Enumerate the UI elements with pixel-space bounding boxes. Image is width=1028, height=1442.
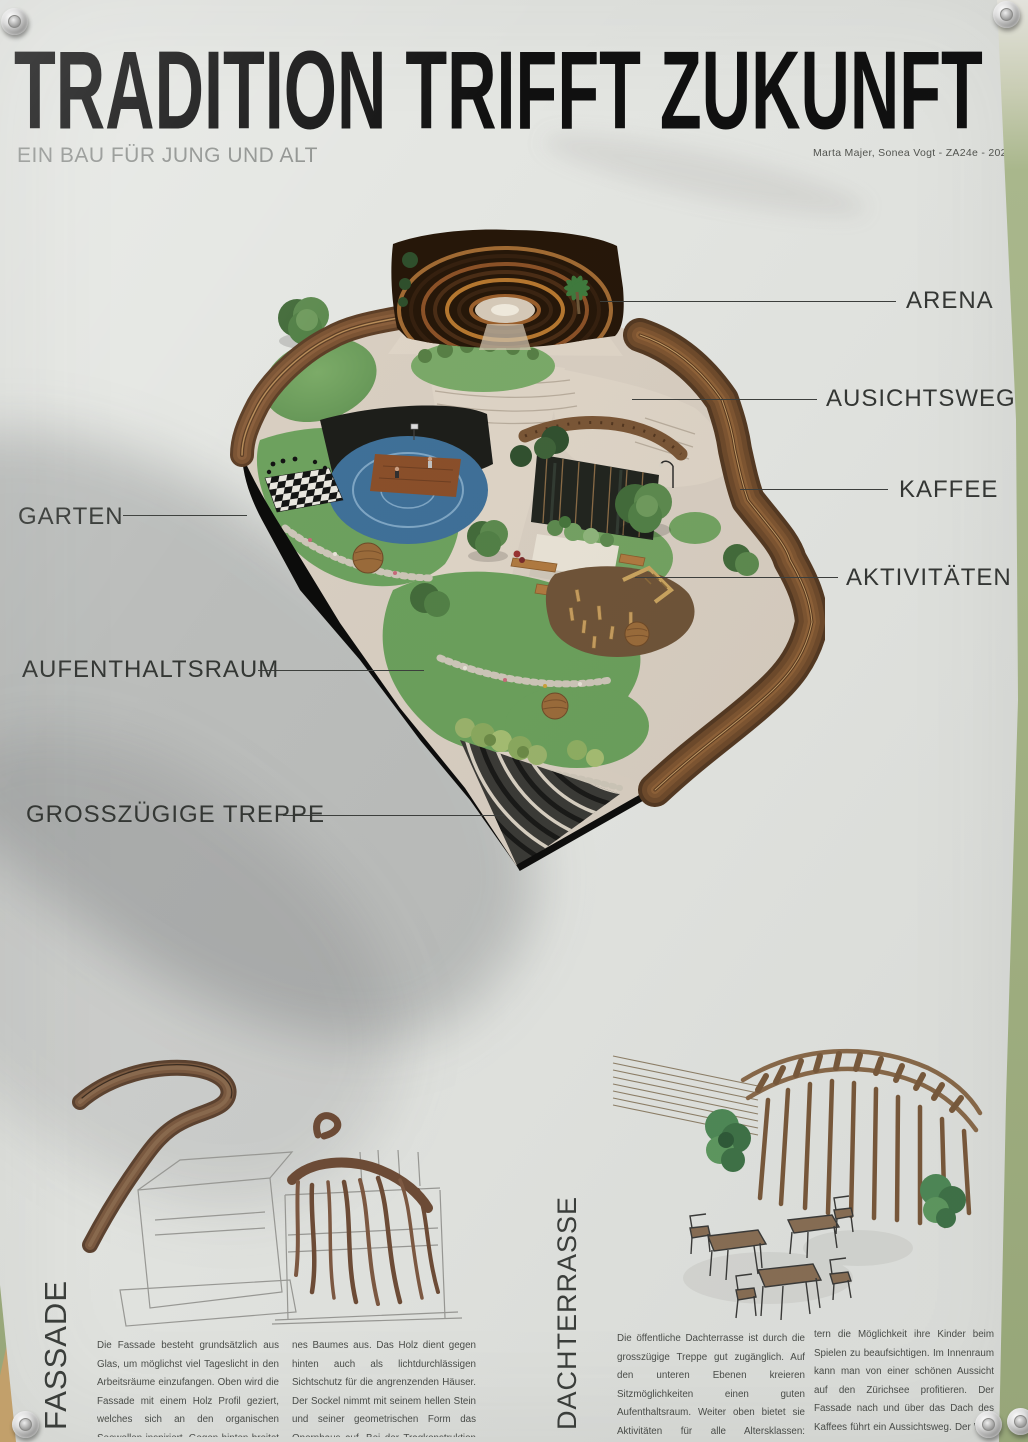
fassade-text-col1: Die Fassade besteht grundsätzlich aus Gl… xyxy=(97,1337,279,1437)
push-pin-bottom-right-2 xyxy=(1007,1408,1028,1435)
callout-ausichtsweg: AUSICHTSWEG xyxy=(826,385,1016,413)
dachterrasse-sketch xyxy=(608,1038,1003,1338)
leader-aktivitaeten xyxy=(635,577,838,578)
push-pin-bottom-left xyxy=(12,1411,39,1438)
callout-garten: GARTEN xyxy=(18,503,124,531)
callout-aufenthaltsraum: AUFENTHALTSRAUM xyxy=(22,656,279,684)
section-heading-fassade: FASSADE xyxy=(38,1280,74,1430)
bush-right xyxy=(920,1174,966,1228)
dachterrasse-text-col2: tern die Möglichkeit ihre Kinder beim Sp… xyxy=(814,1326,994,1432)
poster-subtitle: EIN BAU FÜR JUNG UND ALT xyxy=(17,144,318,168)
section-heading-dachterrasse: DACHTERRASSE xyxy=(552,1196,583,1430)
roof-garden-rendering xyxy=(225,228,825,878)
leader-arena xyxy=(600,301,896,302)
callout-aktivitaeten: AKTIVITÄTEN xyxy=(846,564,1012,592)
dachterrasse-text-col1: Die öffentliche Dachterrasse ist durch d… xyxy=(617,1330,805,1436)
leader-ausichtsweg xyxy=(632,399,817,400)
leader-kaffee xyxy=(740,489,888,490)
callout-treppe: GROSSZÜGIGE TREPPE xyxy=(26,801,325,829)
poster-sheet: TRADITION TRIFFT ZUKUNFT EIN BAU FÜR JUN… xyxy=(0,0,1028,1442)
photographed-poster-scene: TRADITION TRIFFT ZUKUNFT EIN BAU FÜR JUN… xyxy=(0,0,1028,1442)
leader-aufenthaltsraum xyxy=(258,670,424,671)
callout-arena: ARENA xyxy=(906,287,994,315)
page-title: TRADITION TRIFFT ZUKUNFT xyxy=(14,28,1028,115)
fassade-sketch xyxy=(60,1040,480,1340)
push-pin-bottom-right xyxy=(975,1411,1002,1438)
leader-garten xyxy=(123,515,247,516)
push-pin-top-left xyxy=(1,8,28,35)
fassade-text-col2: nes Baumes aus. Das Holz dient gegen hin… xyxy=(292,1337,476,1437)
push-pin-top-right xyxy=(993,1,1020,28)
poster-attribution: Marta Majer, Sonea Vogt - ZA24e - 2026 xyxy=(813,147,1013,159)
callout-kaffee: KAFFEE xyxy=(899,476,998,504)
